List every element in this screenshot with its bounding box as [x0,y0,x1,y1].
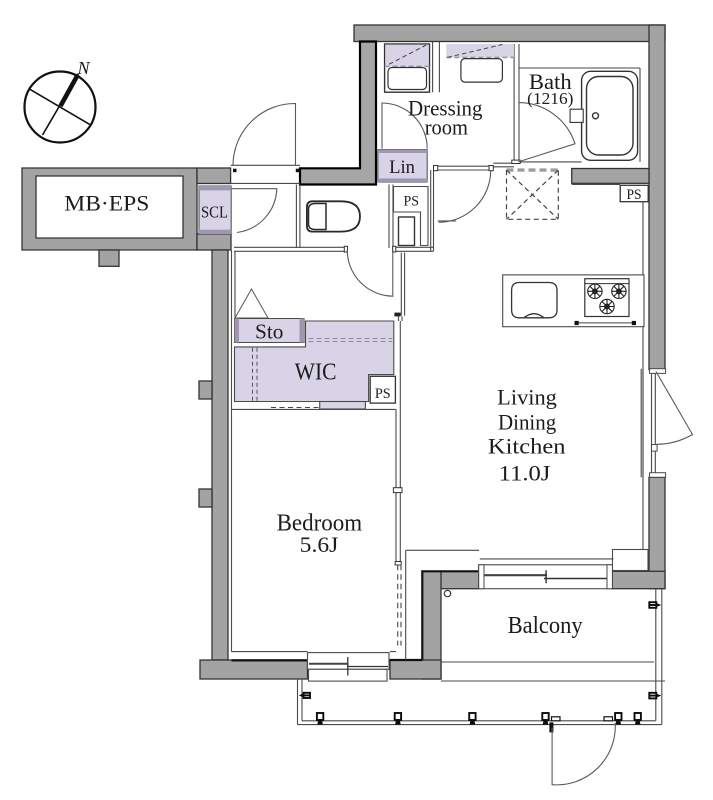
svg-text:(1216): (1216) [527,89,573,108]
svg-text:PS: PS [627,187,642,203]
svg-text:MB·EPS: MB·EPS [64,191,149,216]
svg-text:5.6J: 5.6J [300,532,339,557]
svg-text:WIC: WIC [295,360,337,386]
svg-text:Lin: Lin [389,157,415,178]
svg-text:Sto: Sto [255,319,283,343]
svg-text:PS: PS [375,386,391,402]
svg-text:Dining: Dining [498,410,556,435]
svg-text:PS: PS [404,193,420,209]
svg-text:Balcony: Balcony [508,613,583,639]
svg-text:SCL: SCL [201,203,228,222]
svg-text:N: N [77,58,91,78]
svg-text:room: room [425,114,468,139]
svg-text:Living: Living [497,385,557,410]
svg-text:11.0J: 11.0J [499,461,551,486]
svg-text:Kitchen: Kitchen [488,434,566,459]
